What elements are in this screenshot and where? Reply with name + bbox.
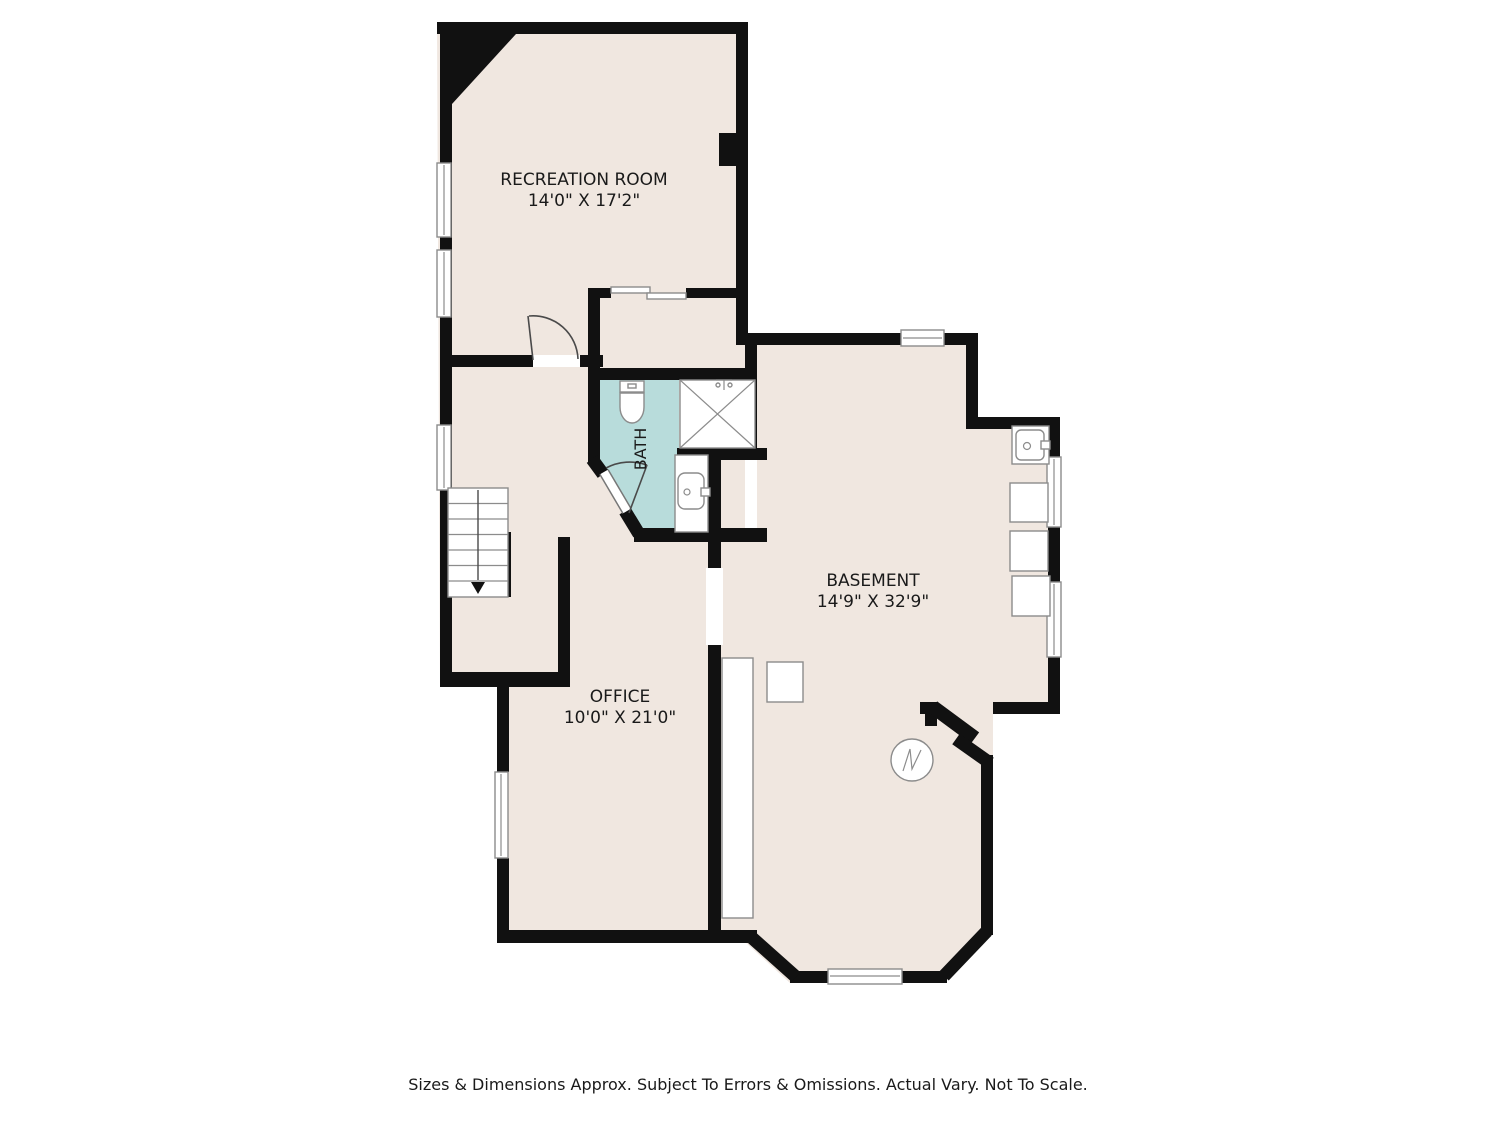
wall-rec-right [736, 22, 748, 345]
washer-icon [1010, 483, 1048, 522]
wall-office-basement-upper [708, 448, 721, 568]
office-basement-door-opening [706, 568, 723, 645]
recreation-door-opening [533, 355, 580, 367]
label-bath: BATH [631, 428, 650, 470]
label-recreation-dims: 14'0" X 17'2" [528, 191, 640, 211]
wall-office-basement-lower [708, 645, 721, 930]
wall-closet-bottom [588, 368, 757, 380]
toilet-icon [620, 381, 644, 423]
appliance-icon [1012, 576, 1050, 616]
wall-rec-bottom-left [448, 355, 533, 367]
wall-closet-top-right [686, 288, 736, 298]
storage-chase [722, 658, 753, 918]
label-basement-dims: 14'9" X 32'9" [817, 592, 929, 612]
wall-basement-top-left [736, 333, 903, 345]
window-basement-right-1 [1047, 457, 1061, 527]
wall-office-bottom [497, 930, 757, 943]
window-rec-left-2 [437, 250, 451, 317]
label-recreation-room: RECREATION ROOM [500, 170, 667, 190]
sump-pump-icon [891, 739, 933, 781]
window-basement-top [901, 330, 944, 346]
wall-step-vertical [966, 333, 978, 429]
wall-bottom-right-horizontal [993, 702, 1060, 714]
sink-vanity-icon [675, 455, 710, 532]
floor-plan: RECREATION ROOM 14'0" X 17'2" BATH BASEM… [0, 0, 1500, 1125]
shower-icon [680, 380, 755, 448]
furnace-icon [767, 662, 803, 702]
dryer-icon [1010, 531, 1048, 571]
wall-office-left-a [497, 687, 509, 772]
wall-hall-bottom [440, 672, 567, 687]
label-office: OFFICE [590, 687, 651, 707]
chimney-bump [719, 133, 736, 166]
disclaimer-text: Sizes & Dimensions Approx. Subject To Er… [408, 1075, 1088, 1094]
wall-office-left-b [497, 858, 509, 943]
floor-plan-page: RECREATION ROOM 14'0" X 17'2" BATH BASEM… [0, 0, 1500, 1125]
label-basement: BASEMENT [826, 571, 920, 591]
wall-lower-right-vertical [981, 755, 993, 935]
window-office-left [495, 772, 508, 858]
window-rec-left-1 [437, 163, 451, 237]
window-bay-bottom [828, 969, 902, 984]
wall-hall-office-divider [558, 537, 570, 687]
wall-top [437, 22, 748, 34]
wall-right-a [1048, 417, 1060, 457]
bay-bottom-right-segment [902, 971, 947, 983]
label-office-dims: 10'0" X 21'0" [564, 708, 676, 728]
nook-opening [745, 458, 757, 530]
bath-diagonal-upper [592, 459, 603, 474]
laundry-tub-icon [1012, 426, 1050, 464]
window-hall-left [437, 425, 451, 490]
wall-right-b [1048, 527, 1060, 582]
staircase [448, 488, 508, 597]
